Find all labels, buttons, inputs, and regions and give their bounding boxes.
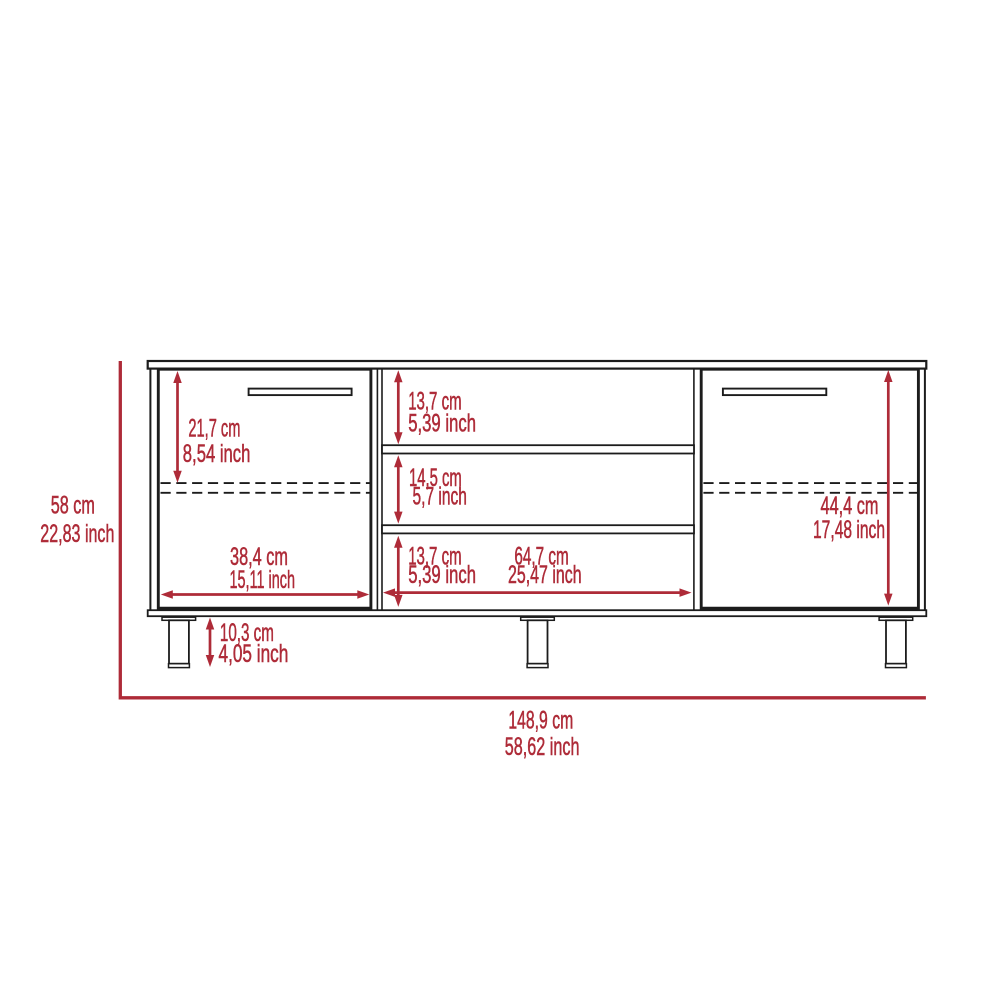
svg-text:5,39 inch: 5,39 inch [408,561,476,589]
svg-text:5,39 inch: 5,39 inch [408,410,476,438]
svg-text:21,7 cm: 21,7 cm [188,415,240,443]
svg-text:17,48 inch: 17,48 inch [813,516,885,544]
svg-text:58,62 inch: 58,62 inch [505,733,580,761]
svg-text:4,05 inch: 4,05 inch [219,640,289,668]
svg-text:25,47 inch: 25,47 inch [508,561,582,589]
svg-text:148,9 cm: 148,9 cm [508,707,573,735]
svg-text:5,7 inch: 5,7 inch [413,483,467,511]
svg-text:8,54 inch: 8,54 inch [183,440,251,468]
svg-text:58 cm: 58 cm [51,491,95,519]
svg-text:22,83 inch: 22,83 inch [40,520,114,548]
svg-text:15,11 inch: 15,11 inch [230,566,296,594]
